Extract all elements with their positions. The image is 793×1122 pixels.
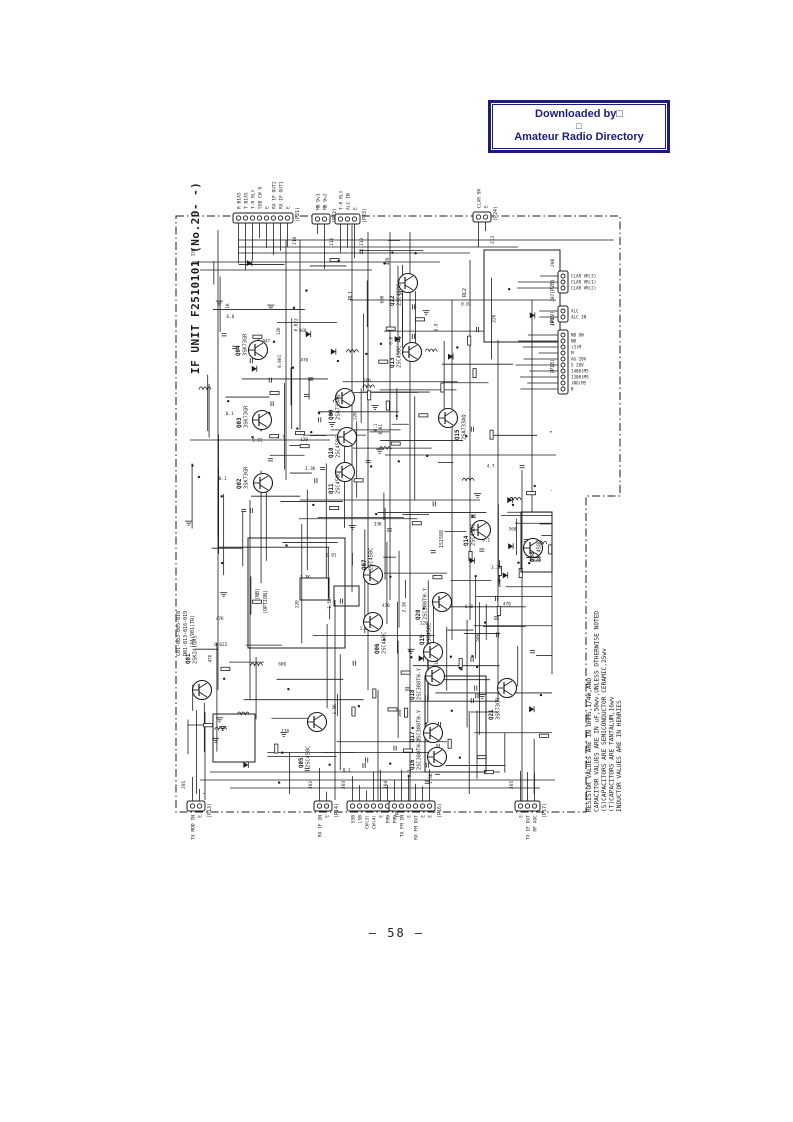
svg-text:560: 560: [299, 328, 307, 334]
module-box: [484, 250, 560, 342]
module-box: [300, 578, 329, 600]
svg-text:ALC: ALC: [571, 309, 579, 314]
schematic: 0.0220.14.70.014703.3K0.0147K0.14.76.833…: [0, 0, 793, 1122]
svg-text:R BIAS: R BIAS: [236, 192, 242, 209]
schematic-notes: RESISTOR VALUES ARE IN OHMS,1/4W,ANDCAPA…: [586, 611, 623, 812]
svg-text:CLAR VR(3): CLAR VR(3): [571, 274, 596, 279]
svg-text:2SC458C: 2SC458C: [397, 346, 403, 368]
svg-text:E: E: [427, 815, 433, 818]
svg-text:2SA733AQ: 2SA733AQ: [462, 414, 468, 440]
svg-text:C01-003-005-010: C01-003-005-010: [176, 611, 182, 656]
svg-text:SSB CW 9: SSB CW 9: [257, 187, 263, 209]
svg-text:E: E: [518, 815, 524, 818]
svg-text:E: E: [483, 205, 489, 208]
svg-text:6.8: 6.8: [226, 314, 234, 320]
svg-text:1300(MS: 1300(MS: [571, 375, 589, 380]
svg-text:MB 9v1: MB 9v1: [315, 193, 321, 210]
svg-text:RX IF IN: RX IF IN: [317, 815, 323, 837]
module-box: [334, 586, 359, 606]
svg-text:470: 470: [207, 654, 213, 662]
svg-text:E: E: [406, 815, 412, 818]
svg-text:Q10: Q10: [329, 447, 335, 458]
svg-text:AG 20V: AG 20V: [571, 357, 587, 362]
svg-text:6.8: 6.8: [465, 604, 473, 610]
transistor-q04: Q043SK73GR: [236, 333, 268, 360]
svg-text:2SC380TH-Y: 2SC380TH-Y: [423, 587, 429, 620]
svg-text:3.3K: 3.3K: [300, 574, 311, 580]
svg-text:USB: USB: [350, 815, 356, 824]
svg-text:2SC458C: 2SC458C: [471, 524, 477, 546]
svg-text:220: 220: [294, 600, 300, 608]
scanned-manual-page: Downloaded by□ □ Amateur Radio Directory…: [0, 0, 793, 1122]
svg-text:0.01: 0.01: [461, 301, 472, 307]
svg-text:6.8: 6.8: [388, 337, 394, 345]
svg-text:(P21): (P21): [295, 207, 301, 222]
svg-text:Q18: Q18: [410, 689, 416, 700]
svg-text:120: 120: [276, 327, 282, 335]
svg-text:TX MOD IN: TX MOD IN: [190, 815, 196, 840]
svg-text:3.3K: 3.3K: [305, 466, 316, 472]
svg-text:TX FM IN: TX FM IN: [399, 815, 405, 837]
svg-text:680: 680: [278, 662, 286, 668]
svg-text:2SA733AQ: 2SA733AQ: [336, 394, 342, 420]
svg-text:2SC458C: 2SC458C: [306, 746, 312, 768]
svg-text:120: 120: [281, 728, 289, 734]
svg-text:3SK73GR: 3SK73GR: [496, 697, 502, 720]
connector-p19: ALCALC IN(P19)J07: [539, 293, 586, 326]
svg-text:RX FM OUT: RX FM OUT: [413, 815, 419, 840]
svg-text:(3)M: (3)M: [571, 345, 582, 350]
svg-text:100: 100: [397, 709, 403, 717]
transistor-q05: Q052SC458C: [299, 713, 327, 769]
svg-text:2SC380TH-Y: 2SC380TH-Y: [417, 667, 423, 700]
svg-text:Q04: Q04: [236, 345, 242, 356]
svg-text:ALC IN: ALC IN: [345, 193, 351, 210]
svg-text:Q02: Q02: [237, 478, 243, 489]
svg-text:470: 470: [300, 357, 308, 363]
svg-text:Q15: Q15: [455, 429, 461, 440]
svg-text:3SK73GR: 3SK73GR: [244, 466, 250, 489]
svg-text:(T)CAPACITORS ARE TANTALUM,16w: (T)CAPACITORS ARE TANTALUM,16wv: [609, 696, 616, 812]
transistor-q08: Q082SC458C: [524, 539, 543, 563]
svg-text:CW(4): CW(4): [371, 815, 377, 829]
svg-text:0.1: 0.1: [373, 423, 379, 431]
svg-text:E: E: [285, 206, 291, 209]
svg-text:J01: J01: [181, 780, 187, 789]
svg-text:RL1: RL1: [348, 291, 354, 300]
svg-text:0.1: 0.1: [219, 476, 227, 482]
svg-text:2SC458C: 2SC458C: [537, 540, 543, 562]
transistor-q15: Q152SA733AQ: [439, 409, 468, 441]
transistor-q21: Q213SK73GR: [489, 679, 517, 721]
svg-text:(P24): (P24): [493, 206, 499, 221]
svg-text:J11: J11: [329, 237, 335, 246]
svg-text:(S)CAPACITORS ARE SEMICONDUCTO: (S)CAPACITORS ARE SEMICONDUCTOR CERAMIC,…: [601, 648, 608, 812]
svg-text:47K: 47K: [216, 616, 224, 622]
svg-text:LSB: LSB: [357, 815, 363, 824]
svg-text:E: E: [324, 815, 330, 818]
svg-text:CLAR VR(2): CLAR VR(2): [571, 286, 596, 291]
connector-p20: CLAR VR(3)CLAR VR(1)CLAR VR(2)(P20)J08: [517, 258, 596, 294]
svg-text:CLAR VR(1): CLAR VR(1): [571, 280, 596, 285]
connector-p22: MB 9v1MB 9v2(P22)J11: [312, 193, 338, 269]
svg-text:Q16: Q16: [410, 759, 416, 770]
svg-text:T-R RLY: T-R RLY: [338, 190, 344, 210]
svg-text:M: M: [571, 351, 574, 356]
transistor-q06: Q062SC458C: [364, 613, 388, 655]
svg-text:RESISTOR VALUES ARE IN OHMS,1/: RESISTOR VALUES ARE IN OHMS,1/4W,AND: [586, 678, 593, 812]
svg-text:RX IF OUT1: RX IF OUT1: [278, 181, 284, 209]
module-box: [213, 714, 255, 762]
svg-text:470: 470: [382, 603, 390, 609]
svg-text:6.8: 6.8: [434, 323, 440, 331]
svg-text:2SC458C: 2SC458C: [427, 623, 433, 645]
svg-text:3SK73GR: 3SK73GR: [244, 405, 250, 428]
svg-text:470: 470: [385, 257, 391, 265]
svg-text:CLAR 9V: CLAR 9V: [476, 188, 482, 208]
connector-p21: R BIAST BIAST-R RLYSSB CW 9ERX IF OUT2RX…: [233, 181, 301, 270]
svg-text:J13: J13: [490, 235, 496, 244]
svg-text:560: 560: [363, 378, 371, 384]
svg-text:J08: J08: [550, 258, 556, 267]
svg-text:Q19: Q19: [420, 634, 426, 645]
svg-text:0.022: 0.022: [214, 642, 227, 648]
svg-text:Q12: Q12: [390, 295, 396, 306]
svg-text:CW(3): CW(3): [364, 815, 370, 829]
svg-text:J07: J07: [550, 293, 556, 302]
svg-text:J04: J04: [383, 780, 389, 789]
svg-text:0.001: 0.001: [277, 354, 283, 367]
svg-text:Q13: Q13: [390, 357, 396, 368]
connector-p15: USBLSBCW(3)CW(4)EFM9(P15)J03: [341, 770, 401, 829]
svg-text:Q20: Q20: [416, 609, 422, 620]
connector-p18: NB ONNB(3)MMAG 20VS 20V1400(MS1300(MS(NO…: [516, 317, 590, 394]
svg-text:470: 470: [503, 602, 511, 608]
svg-text:1.5K: 1.5K: [332, 704, 338, 715]
transistor-q18: Q182SC380TH-Y: [410, 667, 445, 701]
svg-text:D01-013-016-019: D01-013-016-019: [183, 611, 189, 656]
svg-text:3SK73GR: 3SK73GR: [243, 333, 249, 356]
page-number: — 58 —: [0, 926, 793, 940]
svg-text:Q08: Q08: [530, 551, 536, 562]
transistor-q09: Q092SA733AQ: [329, 389, 355, 421]
connector-p24: CLAR 9VE(P24)J13: [473, 188, 499, 246]
svg-text:2SC380TH-Y: 2SC380TH-Y: [417, 709, 423, 742]
svg-text:2SC458C: 2SC458C: [336, 436, 342, 458]
svg-text:J06: J06: [550, 317, 556, 326]
svg-text:J02: J02: [308, 780, 314, 789]
svg-text:4.7: 4.7: [277, 435, 285, 441]
svg-text:0.1: 0.1: [226, 411, 234, 417]
svg-text:(P17): (P17): [542, 803, 548, 818]
svg-text:Q14: Q14: [464, 535, 470, 546]
svg-text:0.01: 0.01: [326, 552, 337, 558]
svg-text:NB ON: NB ON: [571, 333, 584, 338]
connector-p23: T-R RLYALC INE(P23)J12: [335, 190, 368, 258]
svg-text:J12: J12: [359, 237, 365, 246]
svg-text:J03: J03: [341, 780, 347, 789]
svg-text:2SC458C: 2SC458C: [336, 472, 342, 494]
svg-text:E: E: [352, 207, 358, 210]
schematic-title: IF UNIT F2510101 (No.20- -): [189, 182, 202, 374]
svg-text:(4A(901)TR): (4A(901)TR): [190, 615, 196, 648]
svg-text:RX IF OUT2: RX IF OUT2: [271, 181, 277, 209]
svg-text:NB: NB: [571, 339, 577, 344]
svg-text:2.2K: 2.2K: [401, 602, 407, 613]
svg-text:FM9: FM9: [385, 815, 391, 824]
svg-text:(P14): (P14): [334, 803, 340, 818]
transistor-q12: Q122SC458C: [390, 274, 418, 307]
svg-text:MB 9v2: MB 9v2: [322, 193, 328, 210]
svg-text:6.8: 6.8: [497, 579, 503, 587]
svg-text:680: 680: [379, 295, 385, 303]
svg-text:3.3K: 3.3K: [491, 565, 502, 571]
svg-text:1K: 1K: [225, 303, 231, 309]
svg-text:INDUCTOR VALUES ARE IN HENRIES: INDUCTOR VALUES ARE IN HENRIES: [616, 700, 623, 812]
svg-text:(NB): (NB): [255, 588, 261, 600]
svg-text:(OPTION): (OPTION): [263, 590, 269, 614]
svg-text:E: E: [197, 815, 203, 818]
svg-text:Q06: Q06: [375, 643, 381, 654]
svg-text:4.7: 4.7: [487, 464, 495, 470]
svg-text:560: 560: [509, 527, 517, 533]
transistor-q11: Q112SC458C: [329, 463, 355, 495]
transistor-q03: Q033SK73GR: [237, 405, 272, 430]
svg-text:CAPACITOR VALUES ARE IN uF,50w: CAPACITOR VALUES ARE IN uF,50wv,UNLESS O…: [594, 611, 601, 812]
svg-text:RF AGC: RF AGC: [532, 815, 538, 832]
svg-text:B: B: [571, 387, 574, 392]
svg-text:1S1588: 1S1588: [439, 530, 445, 548]
svg-text:Q07: Q07: [362, 559, 368, 570]
svg-text:J10: J10: [292, 236, 298, 245]
svg-text:2SC458C: 2SC458C: [397, 284, 403, 306]
svg-text:120: 120: [300, 437, 308, 443]
svg-text:(NO(MS: (NO(MS: [571, 381, 587, 386]
svg-text:(P23): (P23): [362, 208, 368, 223]
svg-text:Q21: Q21: [489, 709, 495, 720]
svg-text:RL2: RL2: [462, 288, 468, 297]
svg-text:T BIAS: T BIAS: [243, 192, 249, 209]
svg-text:1400(MS: 1400(MS: [571, 369, 589, 374]
svg-text:(P13): (P13): [207, 803, 213, 818]
svg-text:220: 220: [491, 314, 497, 322]
svg-text:TX IF OUT: TX IF OUT: [525, 815, 531, 840]
connector-p17: ETX IF OUTRF AGC(P17)J05: [509, 771, 548, 840]
component-labels: 0.0220.14.70.014703.3K0.0147K0.14.76.833…: [191, 248, 517, 784]
svg-text:2SC458C: 2SC458C: [382, 632, 388, 654]
svg-text:(P16): (P16): [437, 803, 443, 818]
svg-text:Q03: Q03: [237, 417, 243, 428]
svg-text:33K: 33K: [374, 522, 382, 528]
svg-text:Q05: Q05: [299, 757, 305, 768]
svg-text:J05: J05: [509, 780, 515, 789]
svg-text:ALC IN: ALC IN: [571, 315, 587, 320]
svg-text:E: E: [420, 815, 426, 818]
svg-text:0.1: 0.1: [343, 768, 351, 774]
svg-text:S 20V: S 20V: [571, 363, 584, 368]
svg-text:(P20): (P20): [550, 279, 556, 294]
transistor-q17: Q172SC380TH-Y: [410, 709, 443, 742]
svg-text:FM9: FM9: [392, 815, 398, 824]
svg-text:120: 120: [353, 412, 359, 420]
svg-text:1.5K: 1.5K: [428, 773, 434, 784]
svg-text:E: E: [264, 206, 270, 209]
svg-text:0.01: 0.01: [252, 438, 263, 444]
svg-text:Q11: Q11: [329, 483, 335, 494]
svg-text:Q09: Q09: [329, 409, 335, 420]
transistor-q13: Q132SC458C: [390, 343, 422, 369]
transistor-q02: Q023SK73GR: [237, 466, 273, 493]
svg-text:2SC458C: 2SC458C: [369, 548, 375, 570]
svg-text:(P18): (P18): [550, 359, 556, 374]
svg-text:E: E: [378, 815, 384, 818]
svg-text:560: 560: [475, 633, 481, 641]
page-number-text: — 58 —: [369, 926, 424, 940]
svg-text:Q17: Q17: [410, 731, 416, 742]
svg-text:T-R RLY: T-R RLY: [250, 189, 256, 209]
